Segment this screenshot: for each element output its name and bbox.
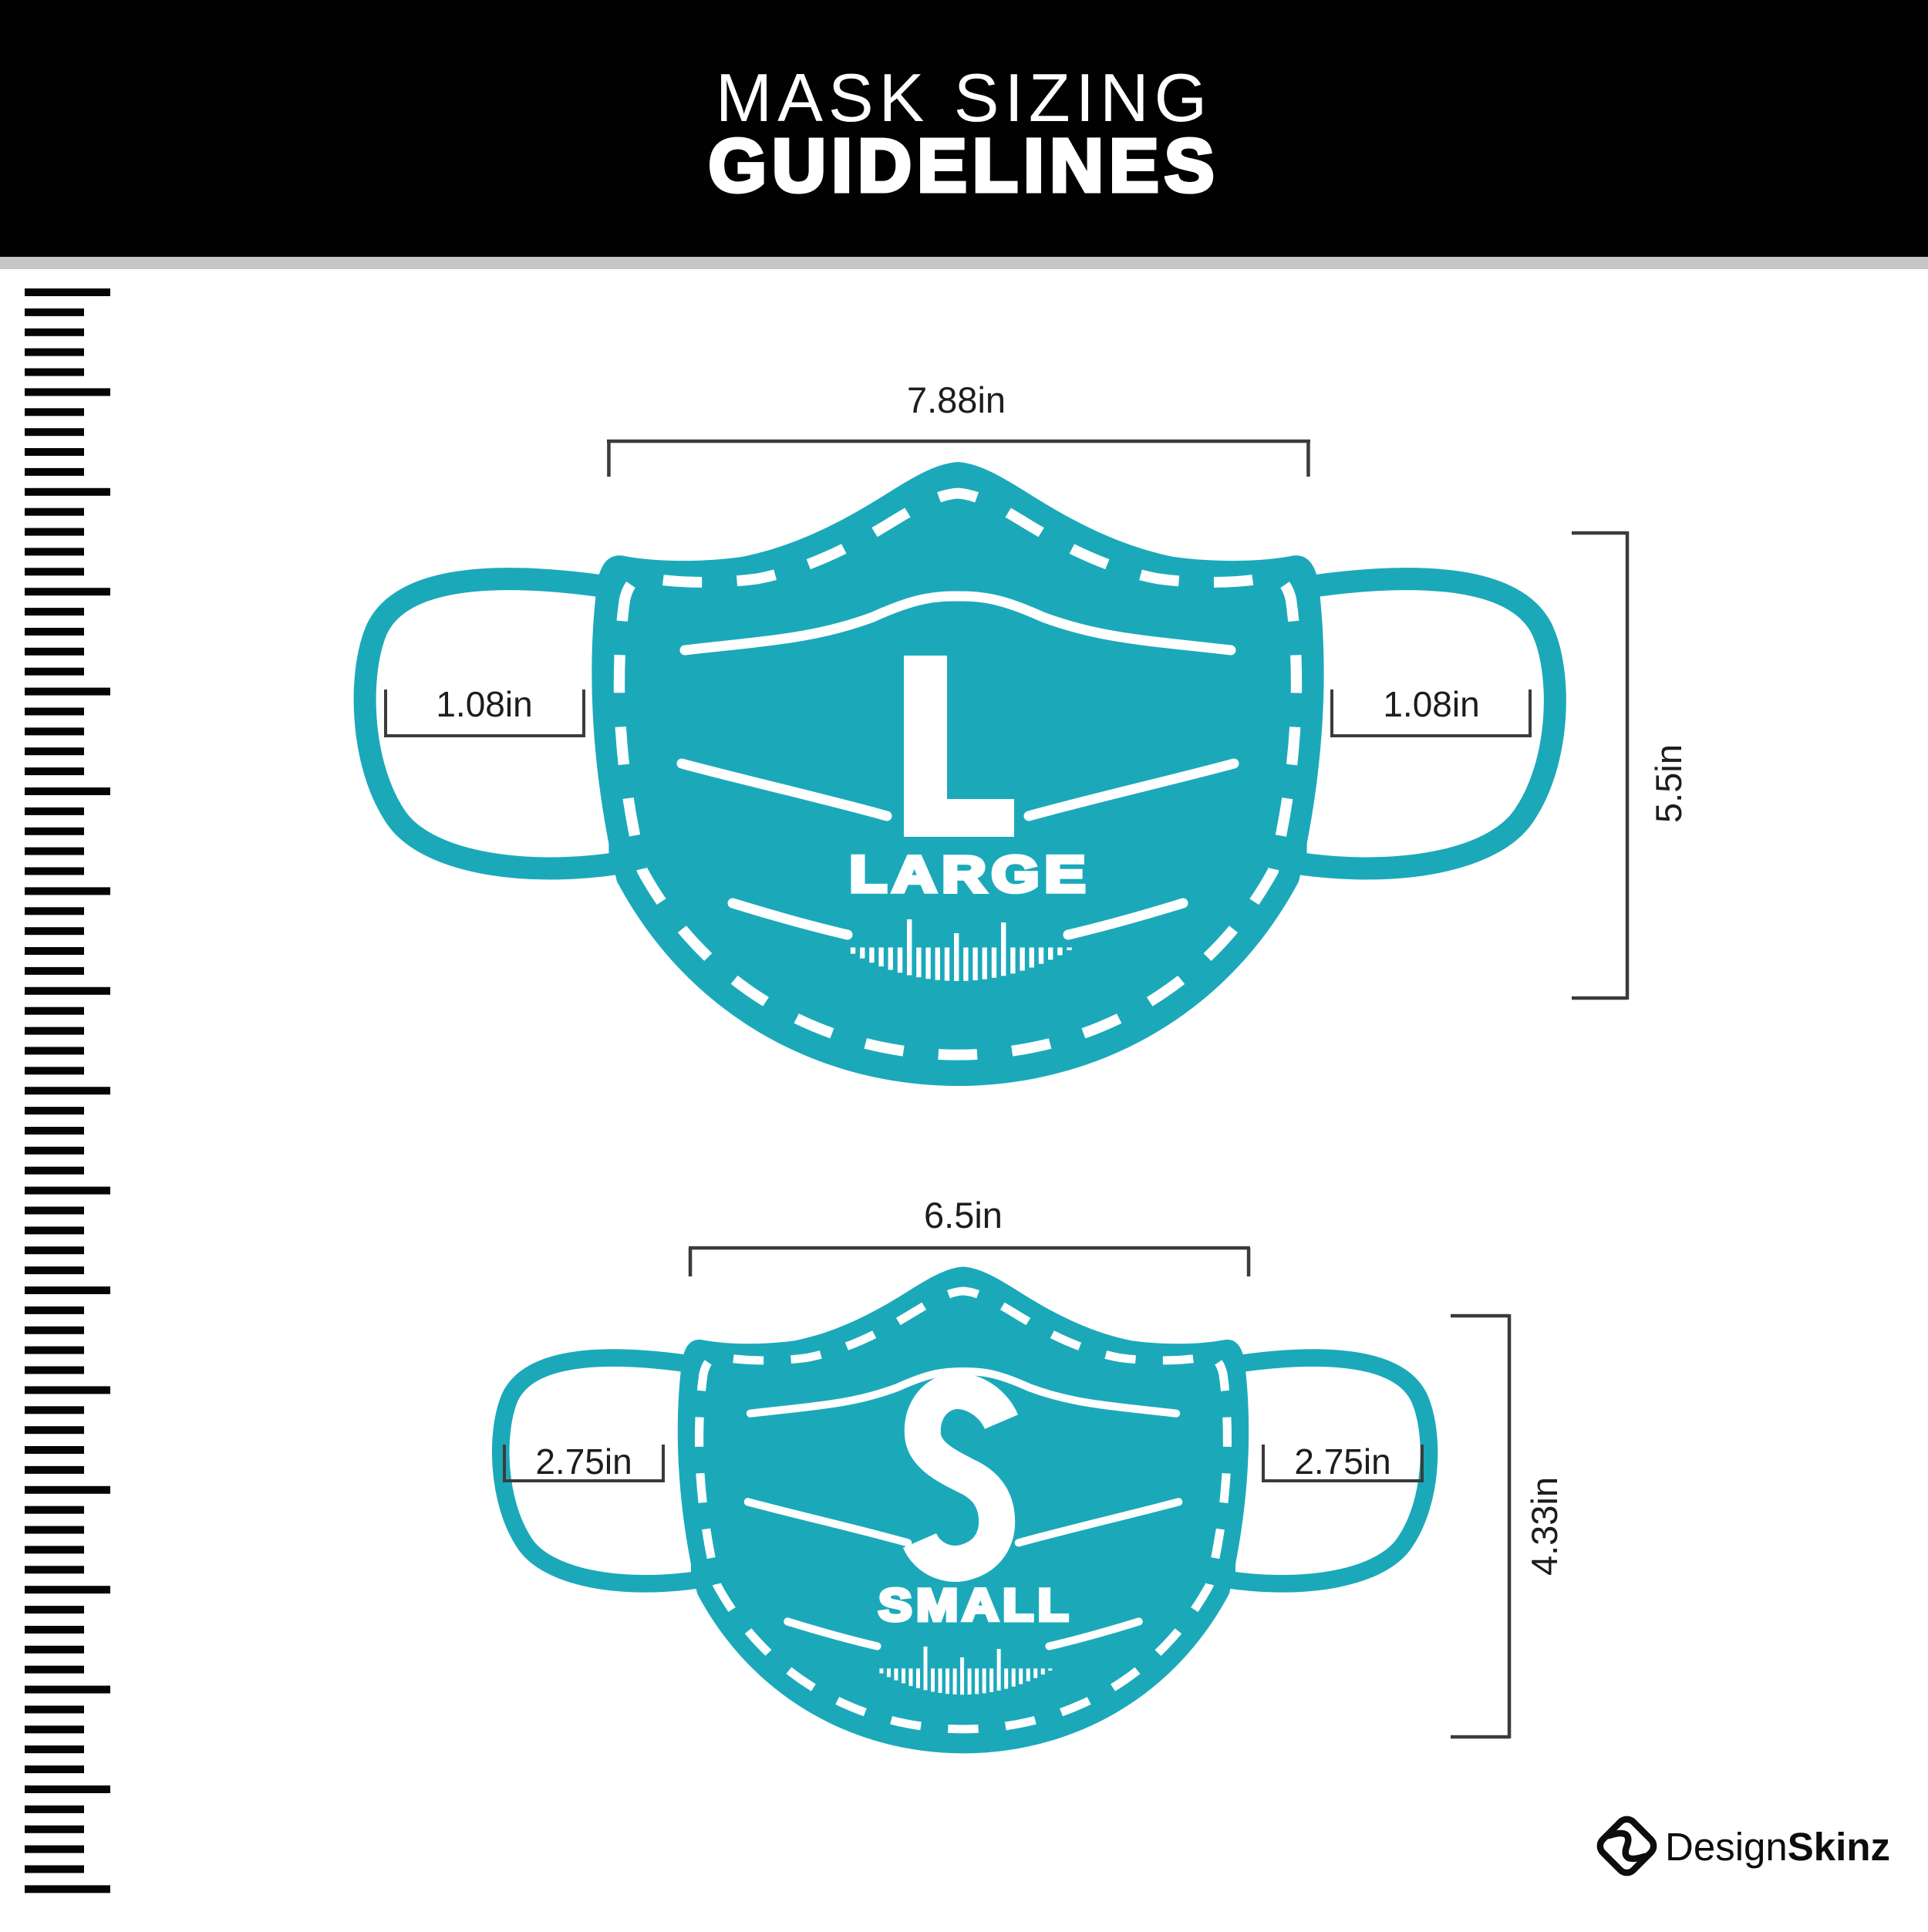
svg-text:7.88in: 7.88in — [907, 379, 1006, 420]
svg-text:5.5in: 5.5in — [1648, 744, 1689, 823]
svg-text:6.5in: 6.5in — [924, 1195, 1003, 1236]
svg-text:DesignSkinz: DesignSkinz — [1665, 1825, 1890, 1869]
svg-text:2.75in: 2.75in — [535, 1441, 632, 1482]
svg-text:1.08in: 1.08in — [436, 684, 532, 724]
svg-text:1.08in: 1.08in — [1383, 684, 1479, 724]
svg-text:SMALL: SMALL — [878, 1580, 1073, 1630]
svg-text:LARGE: LARGE — [849, 846, 1090, 902]
svg-text:2.75in: 2.75in — [1294, 1441, 1390, 1482]
svg-text:4.33in: 4.33in — [1524, 1477, 1565, 1576]
svg-text:GUIDELINES: GUIDELINES — [709, 123, 1220, 207]
